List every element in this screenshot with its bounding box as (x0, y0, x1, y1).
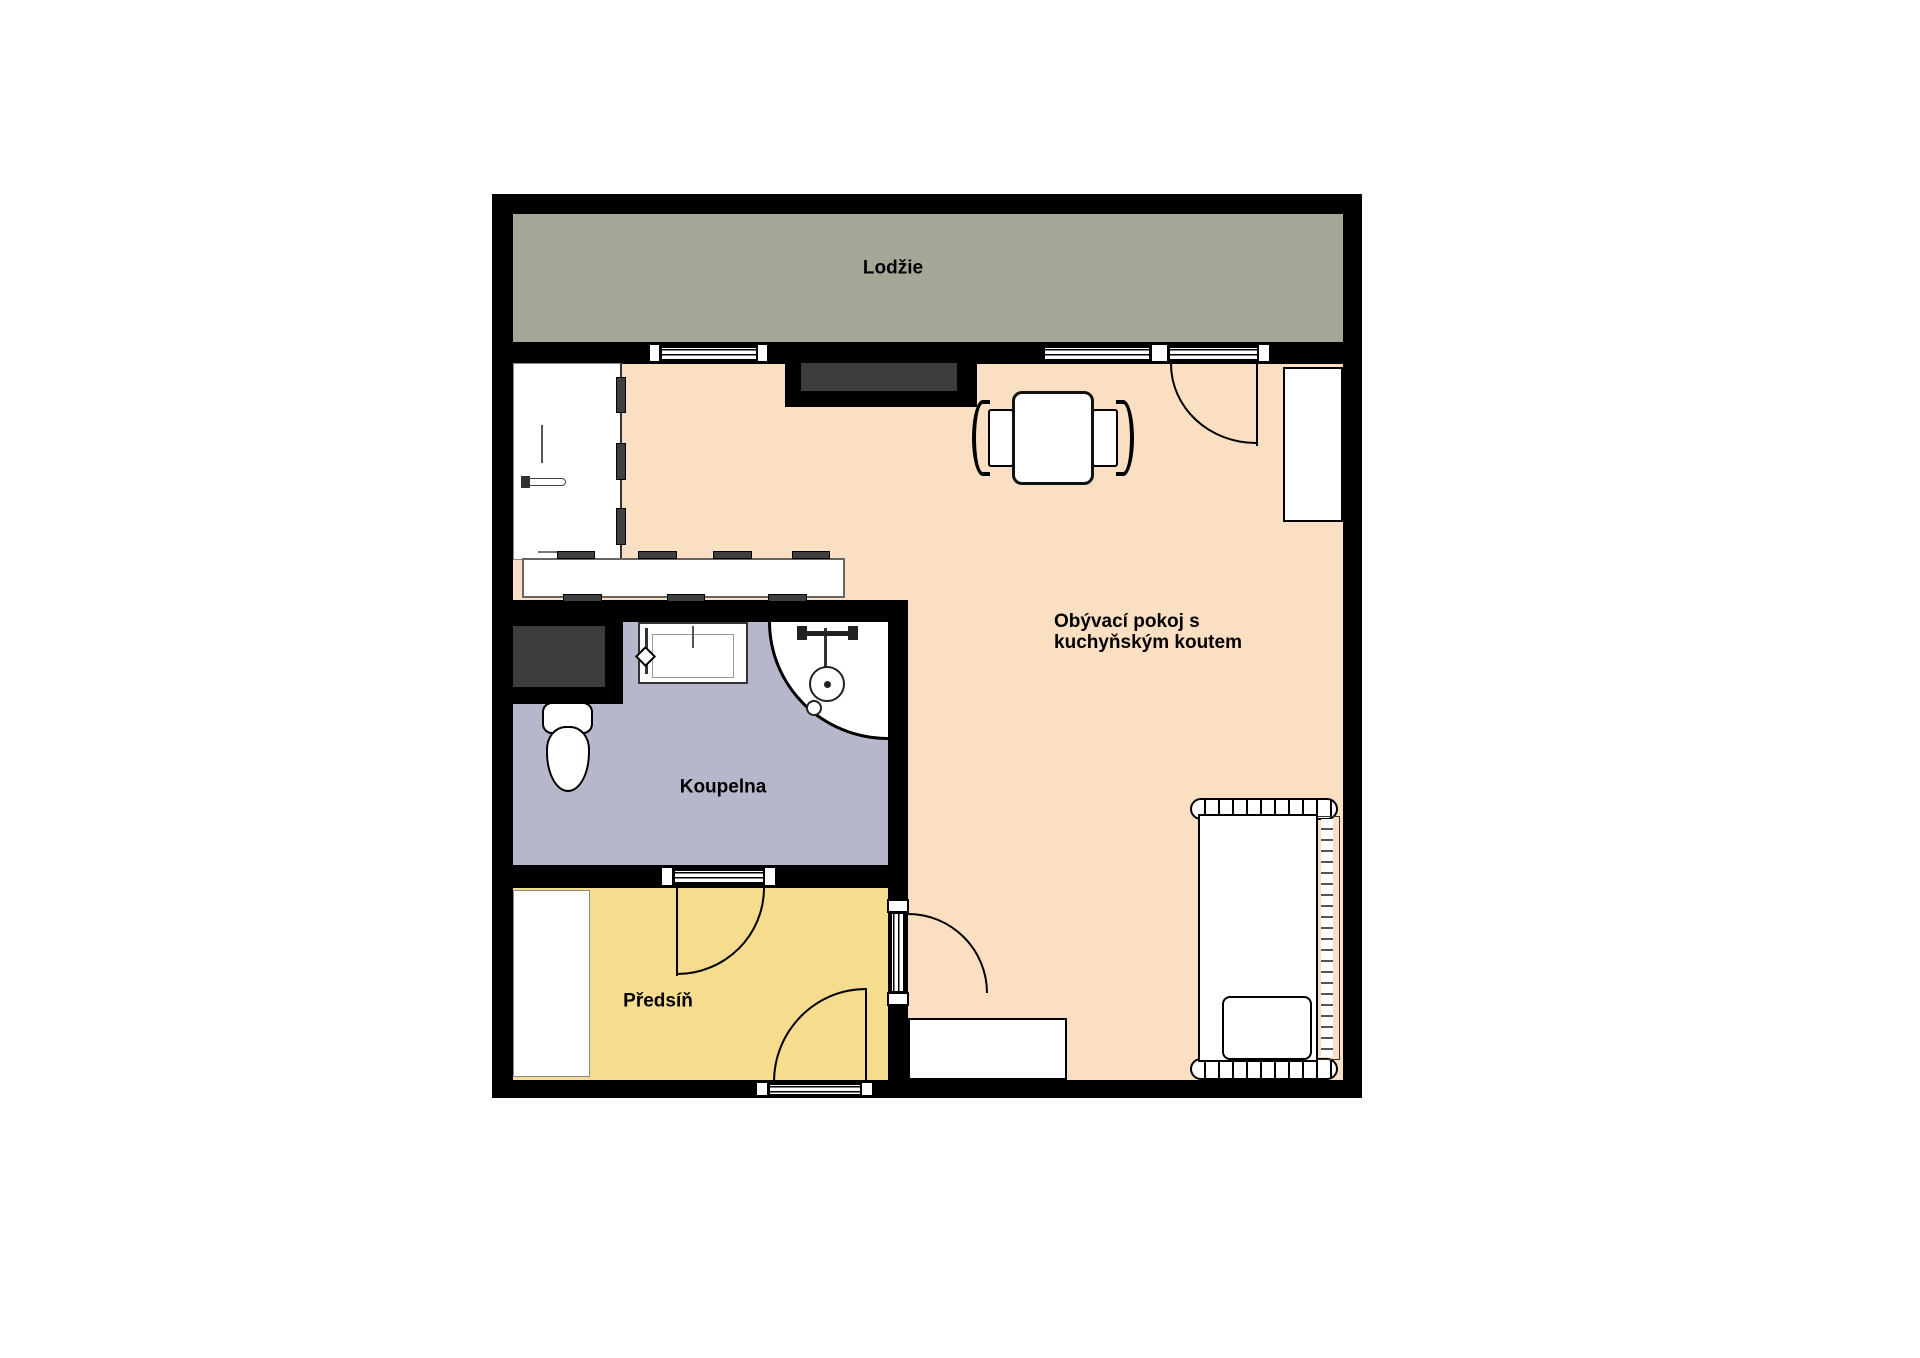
balcony-door-frame (1168, 345, 1259, 362)
bathroom-door-jamb-right (763, 866, 777, 887)
counter-mark-top-1 (557, 551, 595, 559)
label-living: Obývací pokoj s kuchyňským koutem (1054, 611, 1242, 653)
shower-drain (806, 700, 822, 716)
window2-jamb-mid (1150, 343, 1169, 363)
wall-bathroom-right (888, 600, 908, 1080)
entrance-threshold (768, 1082, 862, 1097)
window1-jamb-right (756, 343, 769, 363)
label-living-line2: kuchyňským koutem (1054, 632, 1242, 653)
living-door-threshold (889, 912, 907, 993)
label-hallway: Předsíň (623, 991, 693, 1012)
kitchen-unit-hinge-1 (616, 377, 626, 413)
bathroom-shaft-inner (513, 626, 605, 687)
shower-valve-bar (802, 631, 854, 636)
wall-right (1343, 194, 1362, 1098)
window2 (1043, 345, 1151, 362)
balcony-door-leaf (1256, 364, 1258, 446)
counter-mark-top-2 (638, 551, 677, 559)
bathroom-door-jamb-left (660, 866, 674, 887)
entrance-jamb-left (755, 1081, 769, 1097)
counter-mark-bottom-2 (667, 594, 705, 602)
shower-head-center (824, 681, 831, 688)
hallway-wardrobe (513, 890, 590, 1077)
kitchen-unit-handle (524, 478, 566, 486)
kitchen-unit-hinge-3 (616, 508, 626, 545)
washbasin-mid-line (692, 626, 694, 648)
counter-mark-bottom-1 (563, 594, 602, 602)
right-wall-cabinet (1283, 367, 1343, 522)
living-door-jamb-bottom (887, 992, 909, 1006)
counter-mark-top-4 (792, 551, 830, 559)
kitchen-tall-unit (513, 363, 622, 560)
label-bathroom: Koupelna (680, 777, 767, 798)
entrance-jamb-right (860, 1081, 874, 1097)
label-living-line1: Obývací pokoj s (1054, 611, 1242, 632)
shower-valve-right (848, 626, 858, 640)
bathroom-door-threshold (673, 868, 765, 885)
window1 (660, 345, 758, 362)
wall-bottom (492, 1080, 1362, 1098)
kitchen-counter (522, 558, 845, 598)
wall-left (492, 194, 513, 1098)
counter-mark-top-3 (713, 551, 752, 559)
floorplan-canvas: Lodžie Obývací pokoj s kuchyňským koutem… (0, 0, 1920, 1358)
room-loggia-area (513, 214, 1343, 342)
counter-mark-bottom-3 (768, 594, 807, 602)
sideboard (908, 1018, 1067, 1080)
chair-left-seat (988, 409, 1014, 467)
shower-valve-left (797, 626, 807, 640)
bed-pillow (1222, 996, 1312, 1060)
chair-right-seat (1092, 409, 1118, 467)
kitchen-unit-hinge-2 (616, 443, 626, 480)
wall-top (492, 194, 1362, 214)
wall-kitchen-bathroom (513, 600, 908, 622)
balcony-door-jamb-right (1257, 343, 1271, 363)
kitchen-unit-detail-line (541, 425, 543, 463)
kitchen-vent-inner (801, 363, 957, 391)
label-loggia: Lodžie (863, 258, 923, 279)
kitchen-unit-handle-knob (521, 476, 530, 488)
living-door-jamb-top (887, 899, 909, 913)
dining-table (1012, 391, 1094, 485)
